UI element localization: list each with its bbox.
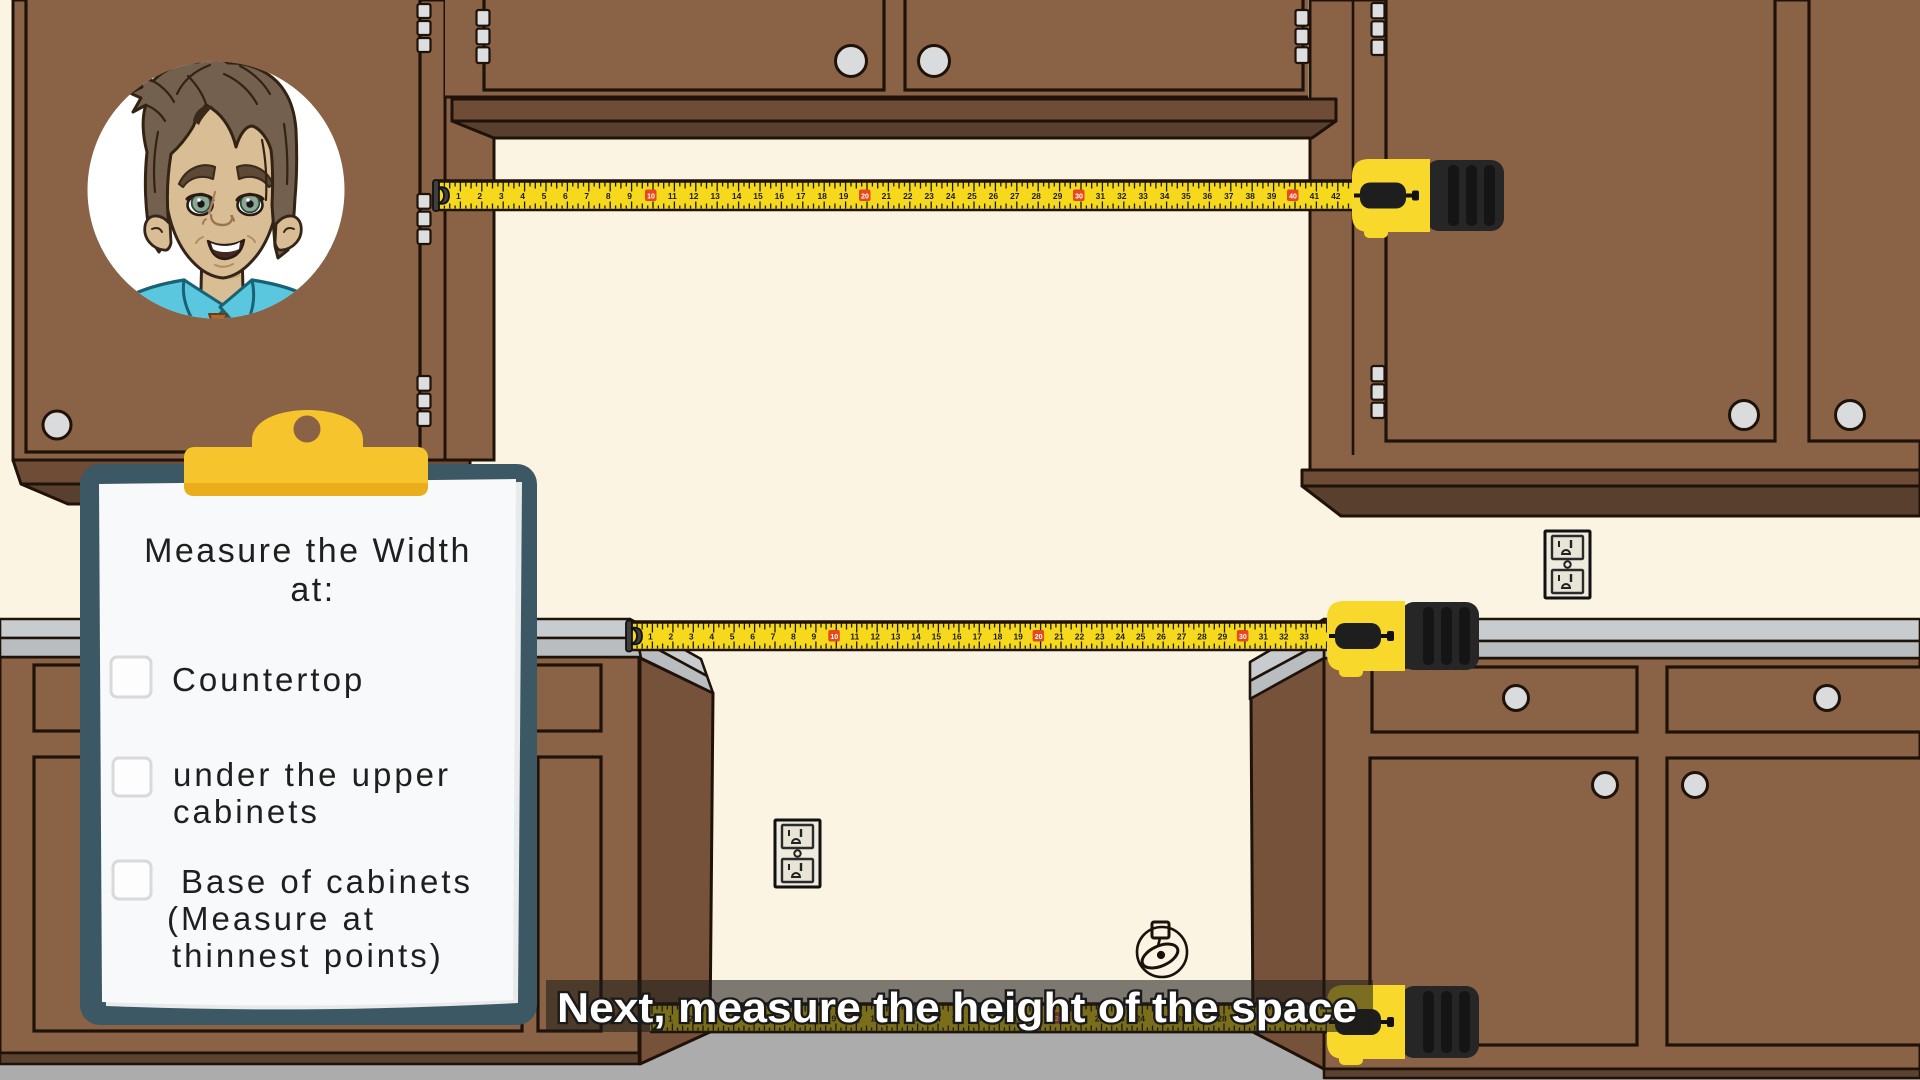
- svg-text:15: 15: [753, 191, 763, 201]
- svg-text:21: 21: [1054, 632, 1064, 642]
- svg-text:8: 8: [606, 191, 611, 201]
- svg-text:25: 25: [1136, 632, 1146, 642]
- svg-text:6: 6: [750, 632, 755, 642]
- svg-text:12: 12: [870, 632, 880, 642]
- svg-text:28: 28: [1197, 632, 1207, 642]
- svg-text:16: 16: [775, 191, 785, 201]
- svg-text:Countertop: Countertop: [172, 661, 365, 698]
- svg-text:23: 23: [1095, 632, 1105, 642]
- svg-text:14: 14: [911, 632, 921, 642]
- svg-text:4: 4: [709, 632, 714, 642]
- svg-text:20: 20: [1035, 634, 1043, 641]
- svg-text:27: 27: [1010, 191, 1020, 201]
- svg-text:22: 22: [903, 191, 913, 201]
- svg-text:17: 17: [796, 191, 806, 201]
- svg-text:8: 8: [791, 632, 796, 642]
- svg-text:16: 16: [952, 632, 962, 642]
- svg-text:1: 1: [648, 632, 653, 642]
- svg-text:18: 18: [817, 191, 827, 201]
- svg-text:12: 12: [689, 191, 699, 201]
- svg-text:31: 31: [1259, 632, 1269, 642]
- svg-text:10: 10: [647, 194, 655, 201]
- svg-text:26: 26: [989, 191, 999, 201]
- svg-text:15: 15: [932, 632, 942, 642]
- svg-text:23: 23: [924, 191, 934, 201]
- svg-text:6: 6: [563, 191, 568, 201]
- svg-text:9: 9: [812, 632, 817, 642]
- svg-text:19: 19: [839, 191, 849, 201]
- svg-text:29: 29: [1053, 191, 1063, 201]
- svg-text:4: 4: [520, 191, 525, 201]
- svg-text:36: 36: [1203, 191, 1213, 201]
- svg-text:28: 28: [1031, 191, 1041, 201]
- svg-text:25: 25: [967, 191, 977, 201]
- svg-text:2: 2: [669, 632, 674, 642]
- svg-text:30: 30: [1239, 634, 1247, 641]
- svg-text:10: 10: [830, 634, 838, 641]
- svg-text:7: 7: [771, 632, 776, 642]
- svg-text:20: 20: [861, 194, 869, 201]
- svg-text:9: 9: [627, 191, 632, 201]
- svg-text:13: 13: [710, 191, 720, 201]
- svg-text:7: 7: [584, 191, 589, 201]
- svg-text:32: 32: [1117, 191, 1127, 201]
- svg-text:30: 30: [1075, 194, 1083, 201]
- svg-text:14: 14: [732, 191, 742, 201]
- svg-text:42: 42: [1331, 191, 1341, 201]
- svg-text:5: 5: [730, 632, 735, 642]
- svg-text:11: 11: [668, 191, 677, 201]
- svg-text:under the upper: under the upper: [173, 756, 451, 793]
- svg-text:17: 17: [973, 632, 983, 642]
- svg-text:Base of cabinets: Base of cabinets: [181, 863, 473, 900]
- svg-text:35: 35: [1181, 191, 1191, 201]
- svg-text:40: 40: [1289, 194, 1297, 201]
- svg-text:27: 27: [1177, 632, 1187, 642]
- svg-text:5: 5: [542, 191, 547, 201]
- svg-text:24: 24: [946, 191, 956, 201]
- svg-text:13: 13: [891, 632, 901, 642]
- svg-text:at:: at:: [290, 571, 335, 609]
- svg-text:26: 26: [1156, 632, 1166, 642]
- svg-text:39: 39: [1267, 191, 1277, 201]
- svg-text:38: 38: [1245, 191, 1255, 201]
- svg-text:3: 3: [499, 191, 504, 201]
- svg-text:21: 21: [882, 191, 892, 201]
- svg-text:Next, measure the height of th: Next, measure the height of the space: [557, 984, 1357, 1031]
- svg-text:34: 34: [1160, 191, 1170, 201]
- svg-text:cabinets: cabinets: [173, 793, 320, 830]
- svg-text:24: 24: [1116, 632, 1126, 642]
- svg-text:22: 22: [1075, 632, 1085, 642]
- svg-text:33: 33: [1299, 632, 1309, 642]
- svg-text:18: 18: [993, 632, 1003, 642]
- svg-text:3: 3: [689, 632, 694, 642]
- svg-text:31: 31: [1096, 191, 1106, 201]
- svg-text:19: 19: [1013, 632, 1023, 642]
- svg-text:1: 1: [456, 191, 461, 201]
- svg-text:32: 32: [1279, 632, 1289, 642]
- svg-text:thinnest points): thinnest points): [172, 937, 444, 974]
- svg-text:Measure the Width: Measure the Width: [144, 532, 472, 570]
- svg-text:(Measure at: (Measure at: [167, 900, 376, 937]
- svg-text:11: 11: [850, 632, 859, 642]
- svg-text:37: 37: [1224, 191, 1234, 201]
- svg-text:2: 2: [477, 191, 482, 201]
- svg-text:33: 33: [1138, 191, 1148, 201]
- svg-text:41: 41: [1310, 191, 1320, 201]
- svg-text:29: 29: [1218, 632, 1228, 642]
